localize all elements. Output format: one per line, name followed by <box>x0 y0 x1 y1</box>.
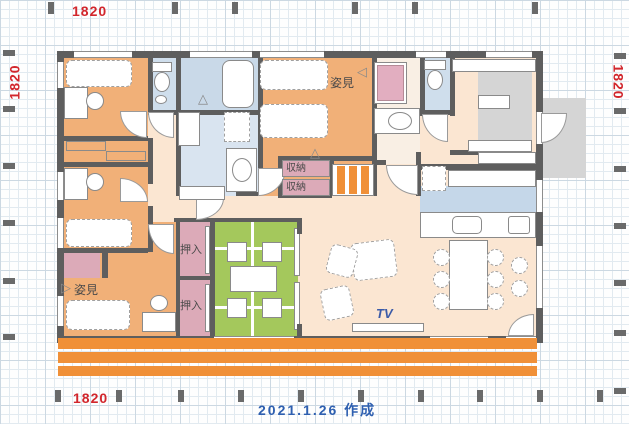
toilet-bowl-icon <box>154 72 170 92</box>
tatami-cushion <box>227 298 247 318</box>
chair-icon <box>150 295 168 311</box>
chair-icon <box>86 173 104 191</box>
ruler-tick <box>116 390 122 402</box>
desk-icon <box>64 168 88 200</box>
tatami-cushion <box>262 242 282 262</box>
wall <box>297 222 302 234</box>
window <box>57 62 64 88</box>
wall <box>236 192 258 196</box>
bed-icon <box>260 60 328 90</box>
hand-basin-icon <box>155 95 167 104</box>
bed-icon <box>66 300 130 330</box>
bed-icon <box>260 104 328 138</box>
oshiire-label-lower: 押入 <box>180 300 202 312</box>
closet-sliding-panel <box>106 151 146 161</box>
tv-label: TV <box>376 306 393 321</box>
dimension-label-top: 1820 <box>72 3 107 19</box>
window <box>57 218 64 248</box>
shoe-cabinet <box>478 95 510 109</box>
ruler-tick <box>3 106 15 112</box>
tv-board <box>352 323 424 332</box>
ruler-tick <box>614 166 626 172</box>
storage-label-lower: 収納 <box>286 182 306 193</box>
washroom-cabinet <box>178 112 200 146</box>
wall <box>174 218 302 222</box>
dimension-label-right: 1820 <box>611 64 627 99</box>
ruler-tick <box>418 390 424 402</box>
storage-label-upper: 収納 <box>286 163 306 174</box>
deck-board <box>58 338 537 349</box>
deck-board <box>58 366 537 376</box>
tatami-cushion <box>262 298 282 318</box>
wall <box>102 252 108 278</box>
mirror-icon: ▷ <box>61 281 71 294</box>
desk-icon <box>142 312 176 332</box>
ruler-tick <box>178 390 184 402</box>
ruler-tick <box>477 390 483 402</box>
tatami-cushion <box>227 242 247 262</box>
ruler-tick <box>298 390 304 402</box>
stair-step <box>349 166 357 194</box>
window <box>416 51 446 58</box>
wall <box>176 58 181 112</box>
ruler-tick <box>3 163 15 169</box>
ruler-tick <box>614 108 626 114</box>
closet-sliding-panel <box>66 141 106 151</box>
chair-icon <box>86 92 104 110</box>
desk-icon <box>64 87 88 119</box>
folding-door-icon: △ <box>310 146 320 159</box>
washroom-step <box>179 186 225 200</box>
shower-icon: △ <box>198 92 208 105</box>
dining-chair <box>487 249 504 266</box>
living-table <box>350 238 398 281</box>
bed-icon <box>66 60 132 87</box>
dining-chair <box>433 293 450 310</box>
dining-chair <box>511 257 528 274</box>
dining-table <box>449 240 488 310</box>
dining-chair <box>487 271 504 288</box>
washing-machine-icon <box>377 65 404 101</box>
ruler-tick <box>614 53 626 59</box>
ruler-tick <box>614 330 626 336</box>
ruler-tick <box>172 2 178 14</box>
mirror-icon: ◁ <box>357 65 367 78</box>
wall <box>210 222 215 336</box>
bed-icon <box>66 219 132 247</box>
ruler-tick <box>614 223 626 229</box>
window <box>536 246 543 308</box>
ruler-tick <box>3 334 15 340</box>
genkan-step <box>468 140 532 152</box>
floor-plan: △ ◁ △ ▷ 姿見 姿見 収 <box>0 0 629 424</box>
stair-step <box>337 166 345 194</box>
tatami-table <box>230 266 277 292</box>
entrance-cabinet <box>452 59 536 72</box>
bedroom-3-closet <box>64 252 100 278</box>
sliding-door <box>294 282 300 330</box>
dining-chair <box>487 293 504 310</box>
sliding-door <box>294 228 300 276</box>
wall <box>64 162 148 167</box>
oshiire-label-upper: 押入 <box>180 244 202 256</box>
washer-space-icon <box>224 112 250 142</box>
window <box>190 51 252 58</box>
kitchen-cupboard <box>478 152 536 164</box>
kitchen-sink-icon <box>452 216 482 234</box>
wall <box>176 222 180 336</box>
dining-chair <box>433 271 450 288</box>
ruler-tick <box>48 2 54 14</box>
ruler-tick <box>537 390 543 402</box>
ruler-tick <box>614 280 626 286</box>
tatami-line <box>210 247 298 250</box>
date-label: 2021.1.26 作成 <box>258 400 376 420</box>
mirror-label-west: 姿見 <box>74 284 98 297</box>
dimension-label-left: 1820 <box>7 64 23 99</box>
ruler-tick <box>532 2 538 14</box>
ruler-tick <box>3 278 15 284</box>
bathtub-icon <box>222 60 254 108</box>
refrigerator-icon <box>422 166 446 191</box>
floor-cushion <box>319 284 355 322</box>
deck-board <box>58 352 537 363</box>
wall <box>148 138 153 184</box>
ruler-tick <box>3 220 15 226</box>
ruler-tick <box>3 50 15 56</box>
ruler-tick <box>238 390 244 402</box>
ruler-tick <box>358 390 364 402</box>
window <box>57 296 64 326</box>
toilet-tank-icon <box>152 62 172 72</box>
dining-chair <box>511 280 528 297</box>
toilet-bowl-icon <box>427 70 443 90</box>
dimension-label-bottom: 1820 <box>73 390 108 406</box>
window <box>536 180 543 212</box>
window <box>260 51 324 58</box>
toilet-tank-icon <box>424 60 446 70</box>
stair-step <box>361 166 369 194</box>
kitchen-stove-icon <box>508 216 530 234</box>
window <box>486 51 532 58</box>
ruler-tick <box>232 2 238 14</box>
wall <box>297 324 302 336</box>
wall <box>372 160 386 165</box>
dining-chair <box>433 249 450 266</box>
ruler-tick <box>597 390 603 402</box>
wall <box>176 276 210 280</box>
mirror-label-main: 姿見 <box>330 77 354 90</box>
window <box>57 172 64 200</box>
washbasin-icon <box>388 112 412 130</box>
ruler-tick <box>55 390 61 402</box>
window <box>74 51 132 58</box>
washbasin-icon <box>232 158 252 182</box>
ruler-tick <box>352 2 358 14</box>
tatami-line <box>210 306 298 309</box>
kitchen-back-counter <box>448 170 536 187</box>
ruler-tick <box>614 388 626 394</box>
ruler-tick <box>412 2 418 14</box>
